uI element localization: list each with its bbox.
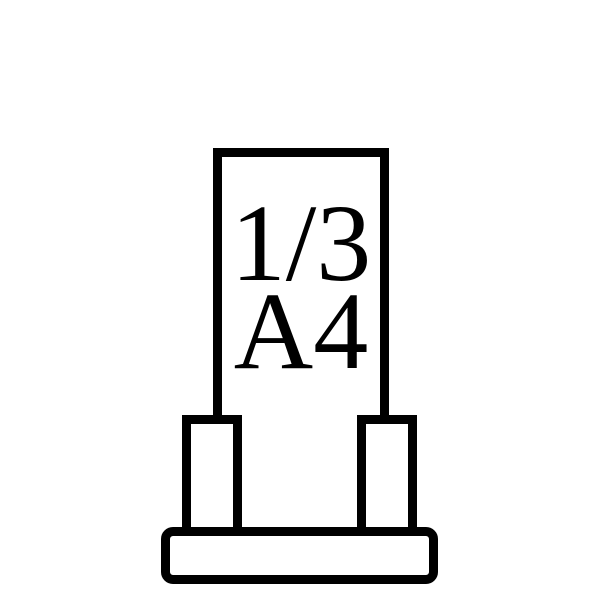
sign-panel-label: 1/3 A4 (222, 199, 380, 375)
one-third-a4-sign-holder-icon: 1/3 A4 (0, 0, 600, 600)
sign-stand-figure: 1/3 A4 (0, 0, 600, 600)
right-clamp-post (357, 415, 417, 536)
stand-base (161, 527, 438, 584)
panel-label-line2: A4 (222, 287, 380, 375)
left-clamp-post (182, 415, 242, 536)
